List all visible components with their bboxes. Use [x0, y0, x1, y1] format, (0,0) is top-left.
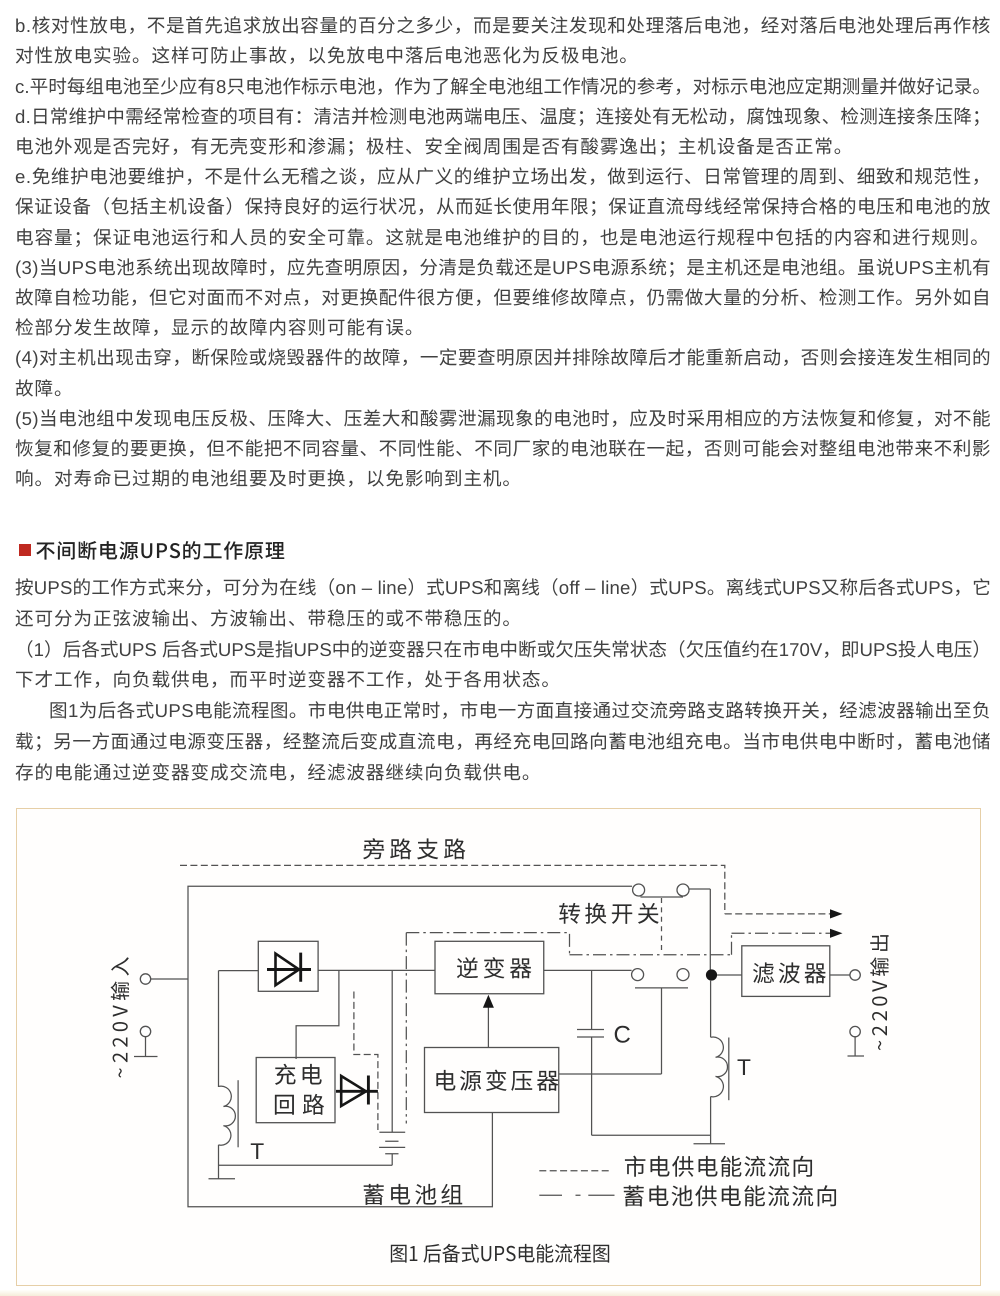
svg-text:T: T	[250, 1138, 264, 1164]
svg-text:滤波器: 滤波器	[752, 956, 827, 989]
svg-text:~220V输出: ~220V输出	[864, 933, 893, 1051]
svg-text:T: T	[737, 1054, 751, 1080]
svg-text:图1 后备式UPS电能流程图: 图1 后备式UPS电能流程图	[389, 1237, 611, 1267]
svg-text:充电: 充电	[274, 1057, 323, 1090]
svg-text:C: C	[614, 1021, 631, 1048]
svg-text:蓄电池供电能流流向: 蓄电池供电能流流向	[622, 1179, 838, 1212]
svg-text:~220V输入: ~220V输入	[104, 957, 133, 1079]
svg-text:电源变压器: 电源变压器	[434, 1063, 560, 1096]
svg-text:回路: 回路	[273, 1087, 325, 1120]
svg-text:旁路支路: 旁路支路	[363, 832, 467, 865]
svg-text:逆变器: 逆变器	[456, 951, 532, 984]
svg-text:市电供电能流流向: 市电供电能流流向	[624, 1149, 815, 1182]
svg-text:蓄电池组: 蓄电池组	[362, 1177, 463, 1210]
svg-text:转换开关: 转换开关	[558, 896, 660, 929]
